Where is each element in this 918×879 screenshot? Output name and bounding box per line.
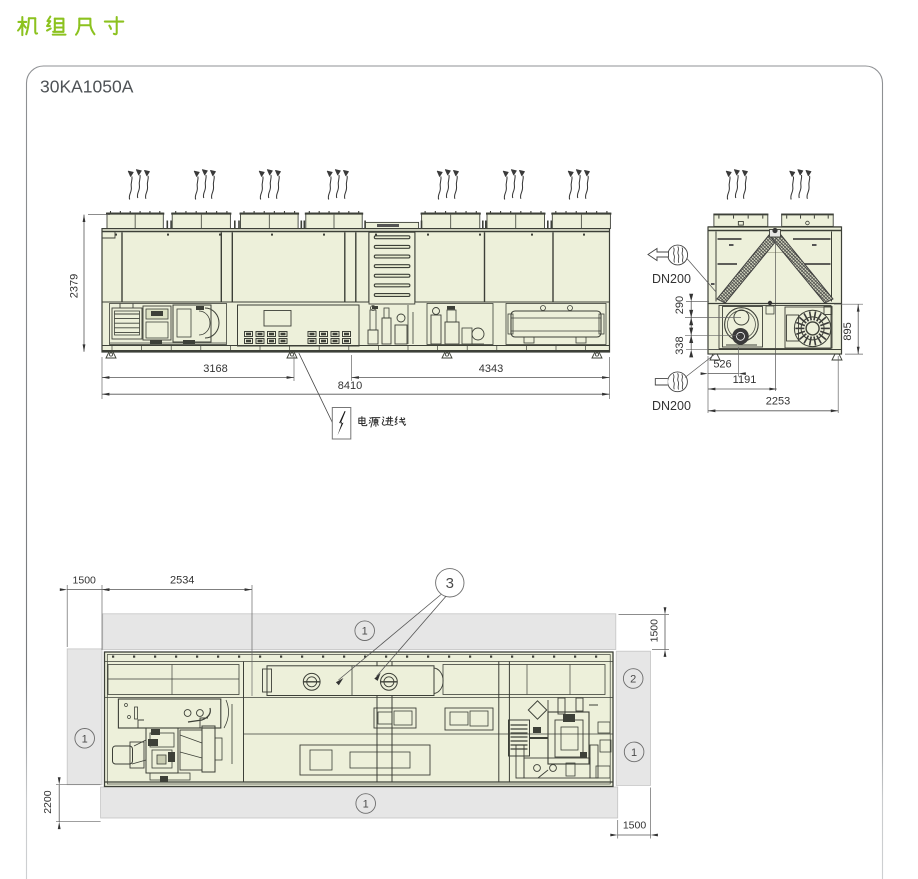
svg-text:1500: 1500 — [623, 820, 647, 832]
svg-text:1191: 1191 — [733, 374, 757, 386]
svg-text:1: 1 — [363, 798, 369, 810]
svg-text:4343: 4343 — [479, 363, 503, 375]
svg-text:895: 895 — [842, 322, 854, 340]
svg-text:2253: 2253 — [766, 396, 790, 408]
svg-text:30KA1050A: 30KA1050A — [40, 77, 134, 97]
svg-text:1500: 1500 — [648, 619, 660, 643]
svg-text:DN200: DN200 — [652, 399, 691, 413]
svg-text:DN200: DN200 — [652, 272, 691, 286]
svg-text:1500: 1500 — [73, 574, 97, 586]
svg-text:8410: 8410 — [338, 380, 362, 392]
svg-text:1: 1 — [82, 733, 88, 745]
svg-text:290: 290 — [674, 296, 686, 314]
svg-text:2200: 2200 — [42, 790, 54, 814]
svg-text:3: 3 — [446, 575, 454, 592]
svg-text:2: 2 — [630, 673, 636, 685]
svg-text:1: 1 — [631, 747, 637, 759]
svg-text:338: 338 — [674, 336, 686, 354]
svg-text:3168: 3168 — [203, 363, 227, 375]
svg-text:1: 1 — [362, 626, 368, 638]
svg-text:2379: 2379 — [69, 274, 81, 298]
svg-text:526: 526 — [713, 359, 731, 371]
svg-text:2534: 2534 — [170, 574, 194, 586]
